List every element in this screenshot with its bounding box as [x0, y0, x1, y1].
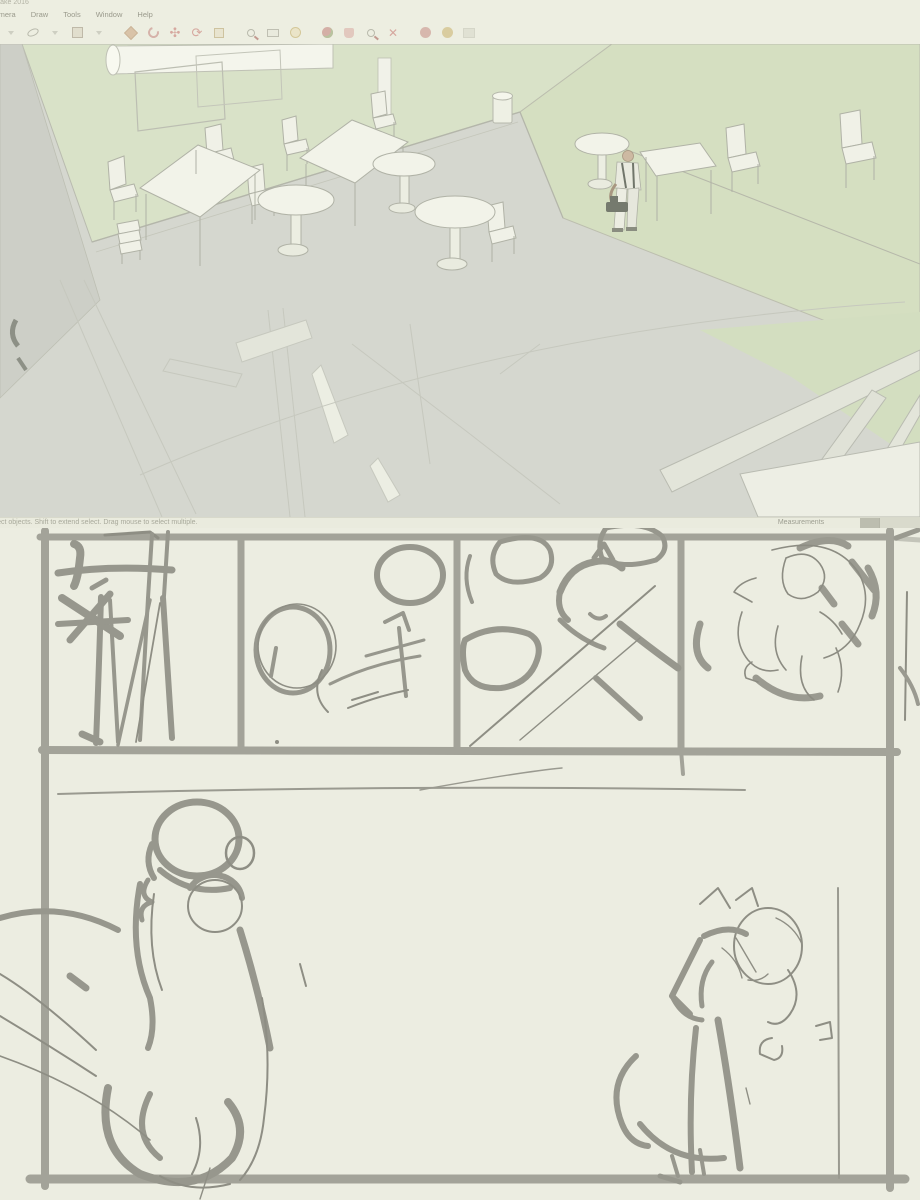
menu-bar: Camera Draw Tools Window Help	[0, 8, 920, 21]
panel-3-sketch	[463, 528, 678, 746]
menu-camera[interactable]: Camera	[0, 10, 16, 19]
eraser-caret-icon[interactable]	[46, 24, 64, 42]
screen: { "window": { "title": "SketchUp Make 20…	[0, 0, 920, 1200]
scale-icon[interactable]	[210, 24, 228, 42]
tape-measure-icon[interactable]	[264, 24, 282, 42]
paint-bucket-icon[interactable]	[68, 24, 86, 42]
shadows-icon[interactable]	[416, 24, 434, 42]
trash-can	[493, 92, 513, 123]
push-pull-icon[interactable]	[122, 24, 140, 42]
zoom-extents-icon[interactable]: ✕	[384, 24, 402, 42]
move-icon[interactable]: ✣	[166, 24, 184, 42]
window-edge	[879, 518, 920, 528]
follow-me-icon[interactable]	[144, 24, 162, 42]
menu-window[interactable]: Window	[96, 10, 123, 19]
sketch-canvas[interactable]	[0, 528, 920, 1200]
guide-lines	[58, 768, 745, 794]
panel-1-sketch	[58, 532, 172, 745]
eraser-icon[interactable]	[24, 24, 42, 42]
sketchup-window: SketchUp Make 2016 Camera Draw Tools Win…	[0, 0, 920, 528]
measurements-label: Measurements	[746, 519, 856, 526]
status-bar: Select objects. Shift to extend select. …	[0, 517, 920, 528]
dog-and-head-sketch	[616, 888, 832, 1182]
select-caret-icon[interactable]	[2, 24, 20, 42]
panel-4-sketch	[696, 540, 876, 700]
measurements-box[interactable]	[860, 518, 879, 528]
disabled-tool-icon	[460, 24, 478, 42]
window-title: SketchUp Make 2016	[0, 0, 29, 7]
zoom-window-icon[interactable]	[242, 24, 260, 42]
3d-viewport[interactable]	[0, 44, 920, 517]
orbit-icon[interactable]	[318, 24, 336, 42]
chair-sketch	[0, 911, 150, 1140]
menu-tools[interactable]: Tools	[63, 10, 81, 19]
panel-2-sketch	[256, 547, 443, 744]
title-bar: SketchUp Make 2016	[0, 0, 920, 8]
status-hint: Select objects. Shift to extend select. …	[0, 519, 198, 526]
menu-draw[interactable]: Draw	[31, 10, 49, 19]
protractor-icon[interactable]	[286, 24, 304, 42]
pan-icon[interactable]	[340, 24, 358, 42]
rotate-icon[interactable]: ⟳	[188, 24, 206, 42]
menu-help[interactable]: Help	[137, 10, 152, 19]
margin-sketch-scraps	[896, 530, 918, 720]
paint-bucket-caret-icon[interactable]	[90, 24, 108, 42]
zoom-icon[interactable]	[362, 24, 380, 42]
toolbar: ✣ ⟳ ✕	[0, 21, 920, 44]
views-icon[interactable]	[438, 24, 456, 42]
